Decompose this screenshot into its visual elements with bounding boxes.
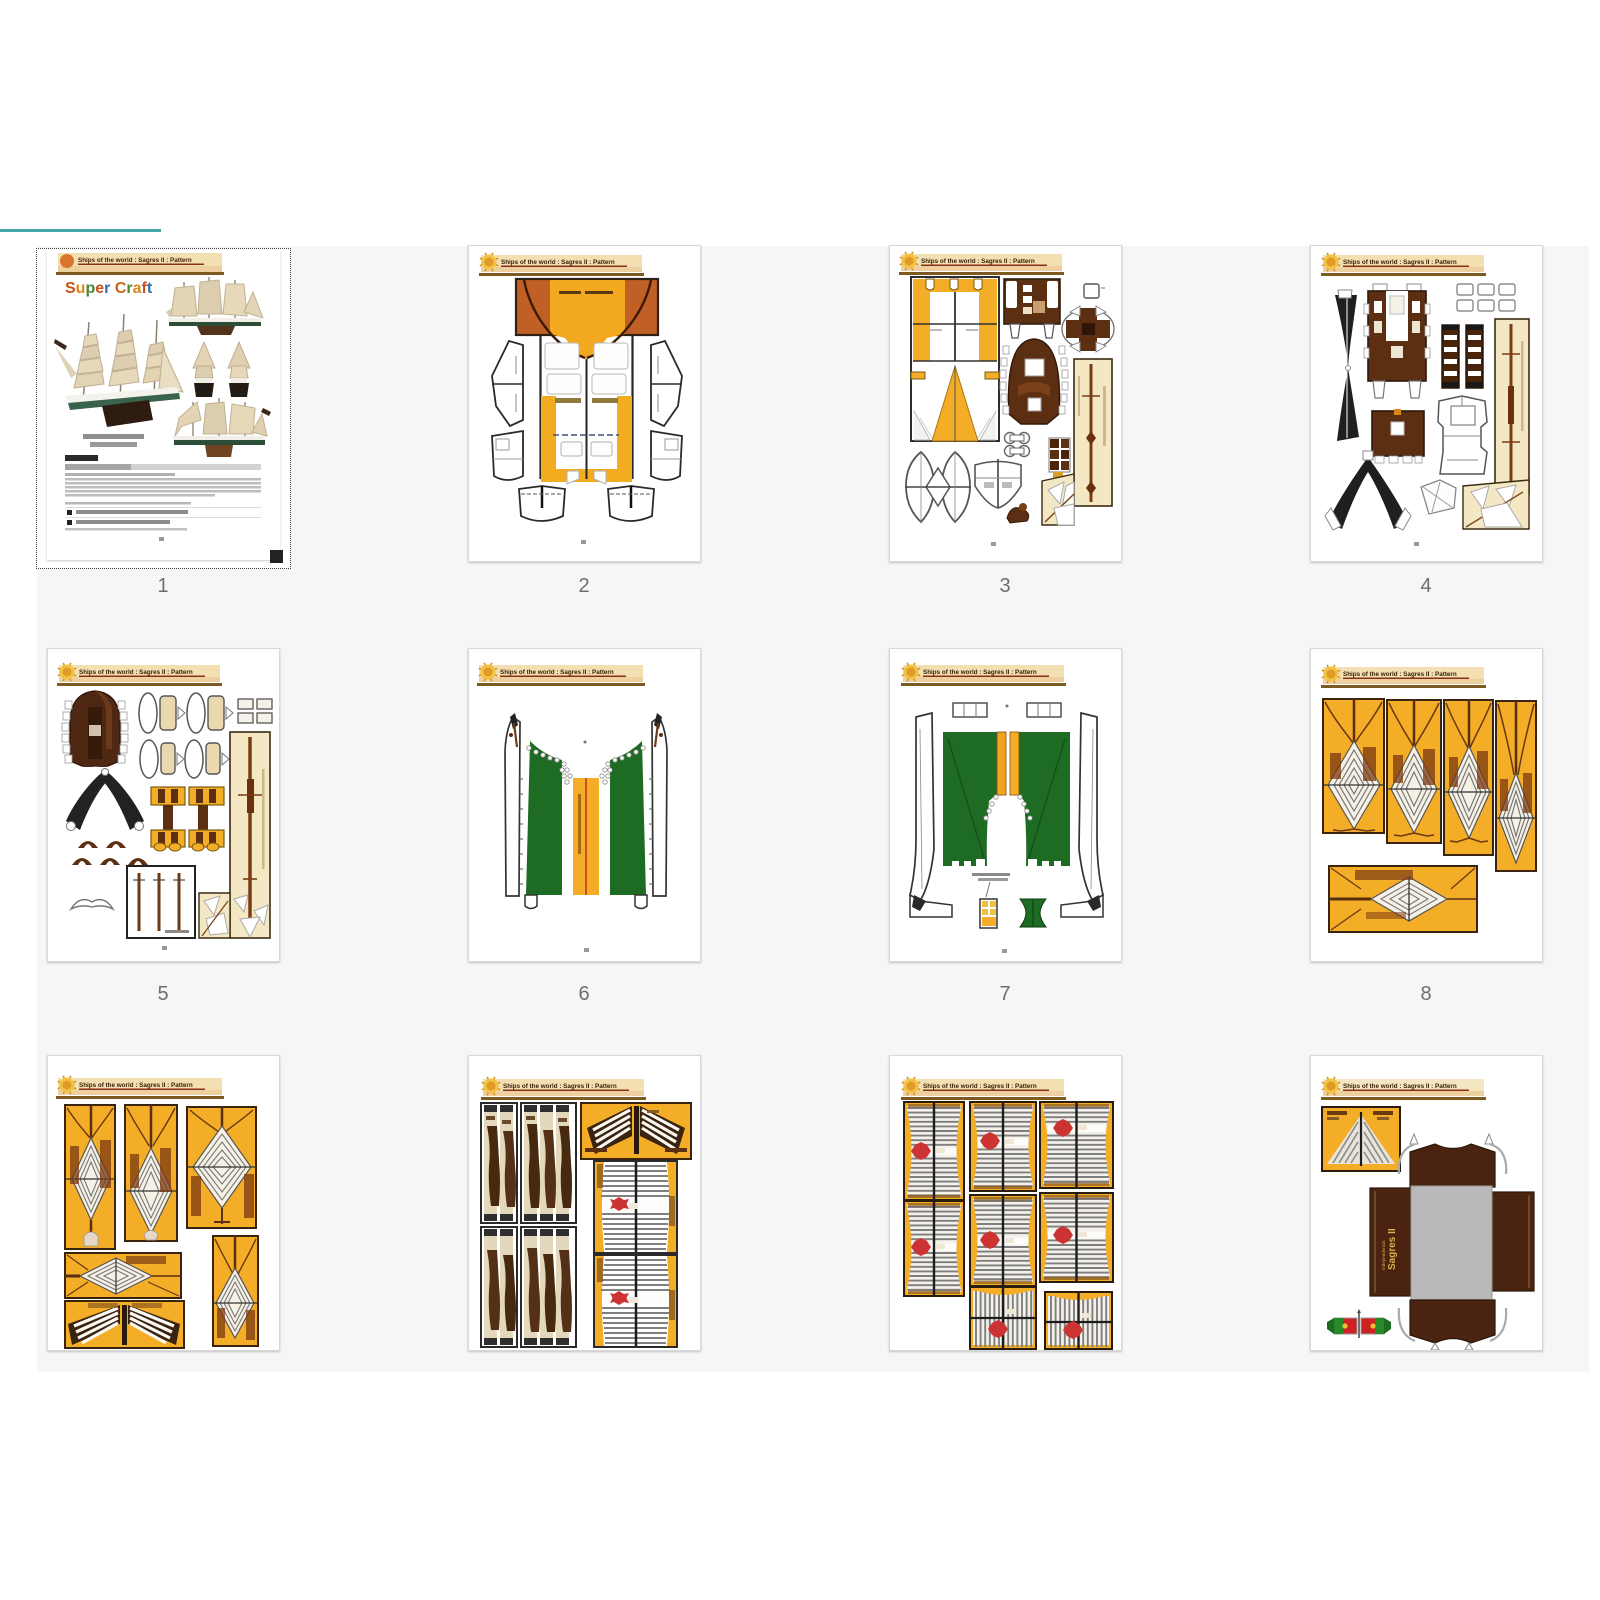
- svg-text:Ships of the world : Sagres II: Ships of the world : Sagres II : Pattern: [1343, 259, 1457, 266]
- svg-text:Ships of the world : Sagres II: Ships of the world : Sagres II : Pattern: [923, 669, 1037, 676]
- svg-text:Ships of the world : Sagres II: Ships of the world : Sagres II : Pattern: [501, 259, 615, 266]
- svg-text:Sagres II: Sagres II: [1387, 1228, 1398, 1270]
- svg-text:Ships of the world : Sagres II: Ships of the world : Sagres II : Pattern: [79, 669, 193, 676]
- svg-text:Ships of the world : Sagres II: Ships of the world : Sagres II : Pattern: [1343, 1083, 1457, 1090]
- svg-text:Ships of the world : Sagres II: Ships of the world : Sagres II : Pattern: [923, 1083, 1037, 1090]
- svg-text:Super Craft: Super Craft: [65, 280, 153, 297]
- svg-text:Ships of the world : Sagres II: Ships of the world : Sagres II : Pattern: [1343, 671, 1457, 678]
- svg-text:Ships of the world : Sagres II: Ships of the world : Sagres II : Pattern: [500, 669, 614, 676]
- svg-text:Ships of the world : Sagres II: Ships of the world : Sagres II : Pattern: [503, 1083, 617, 1090]
- svg-text:Ships of the world : Sagres II: Ships of the world : Sagres II : Pattern: [921, 258, 1035, 265]
- svg-text:Independencia: Independencia: [1381, 1240, 1386, 1270]
- svg-text:Ships of the world : Sagres II: Ships of the world : Sagres II : Pattern: [79, 1082, 193, 1089]
- svg-text:Ships of the world : Sagres II: Ships of the world : Sagres II : Pattern: [78, 257, 192, 264]
